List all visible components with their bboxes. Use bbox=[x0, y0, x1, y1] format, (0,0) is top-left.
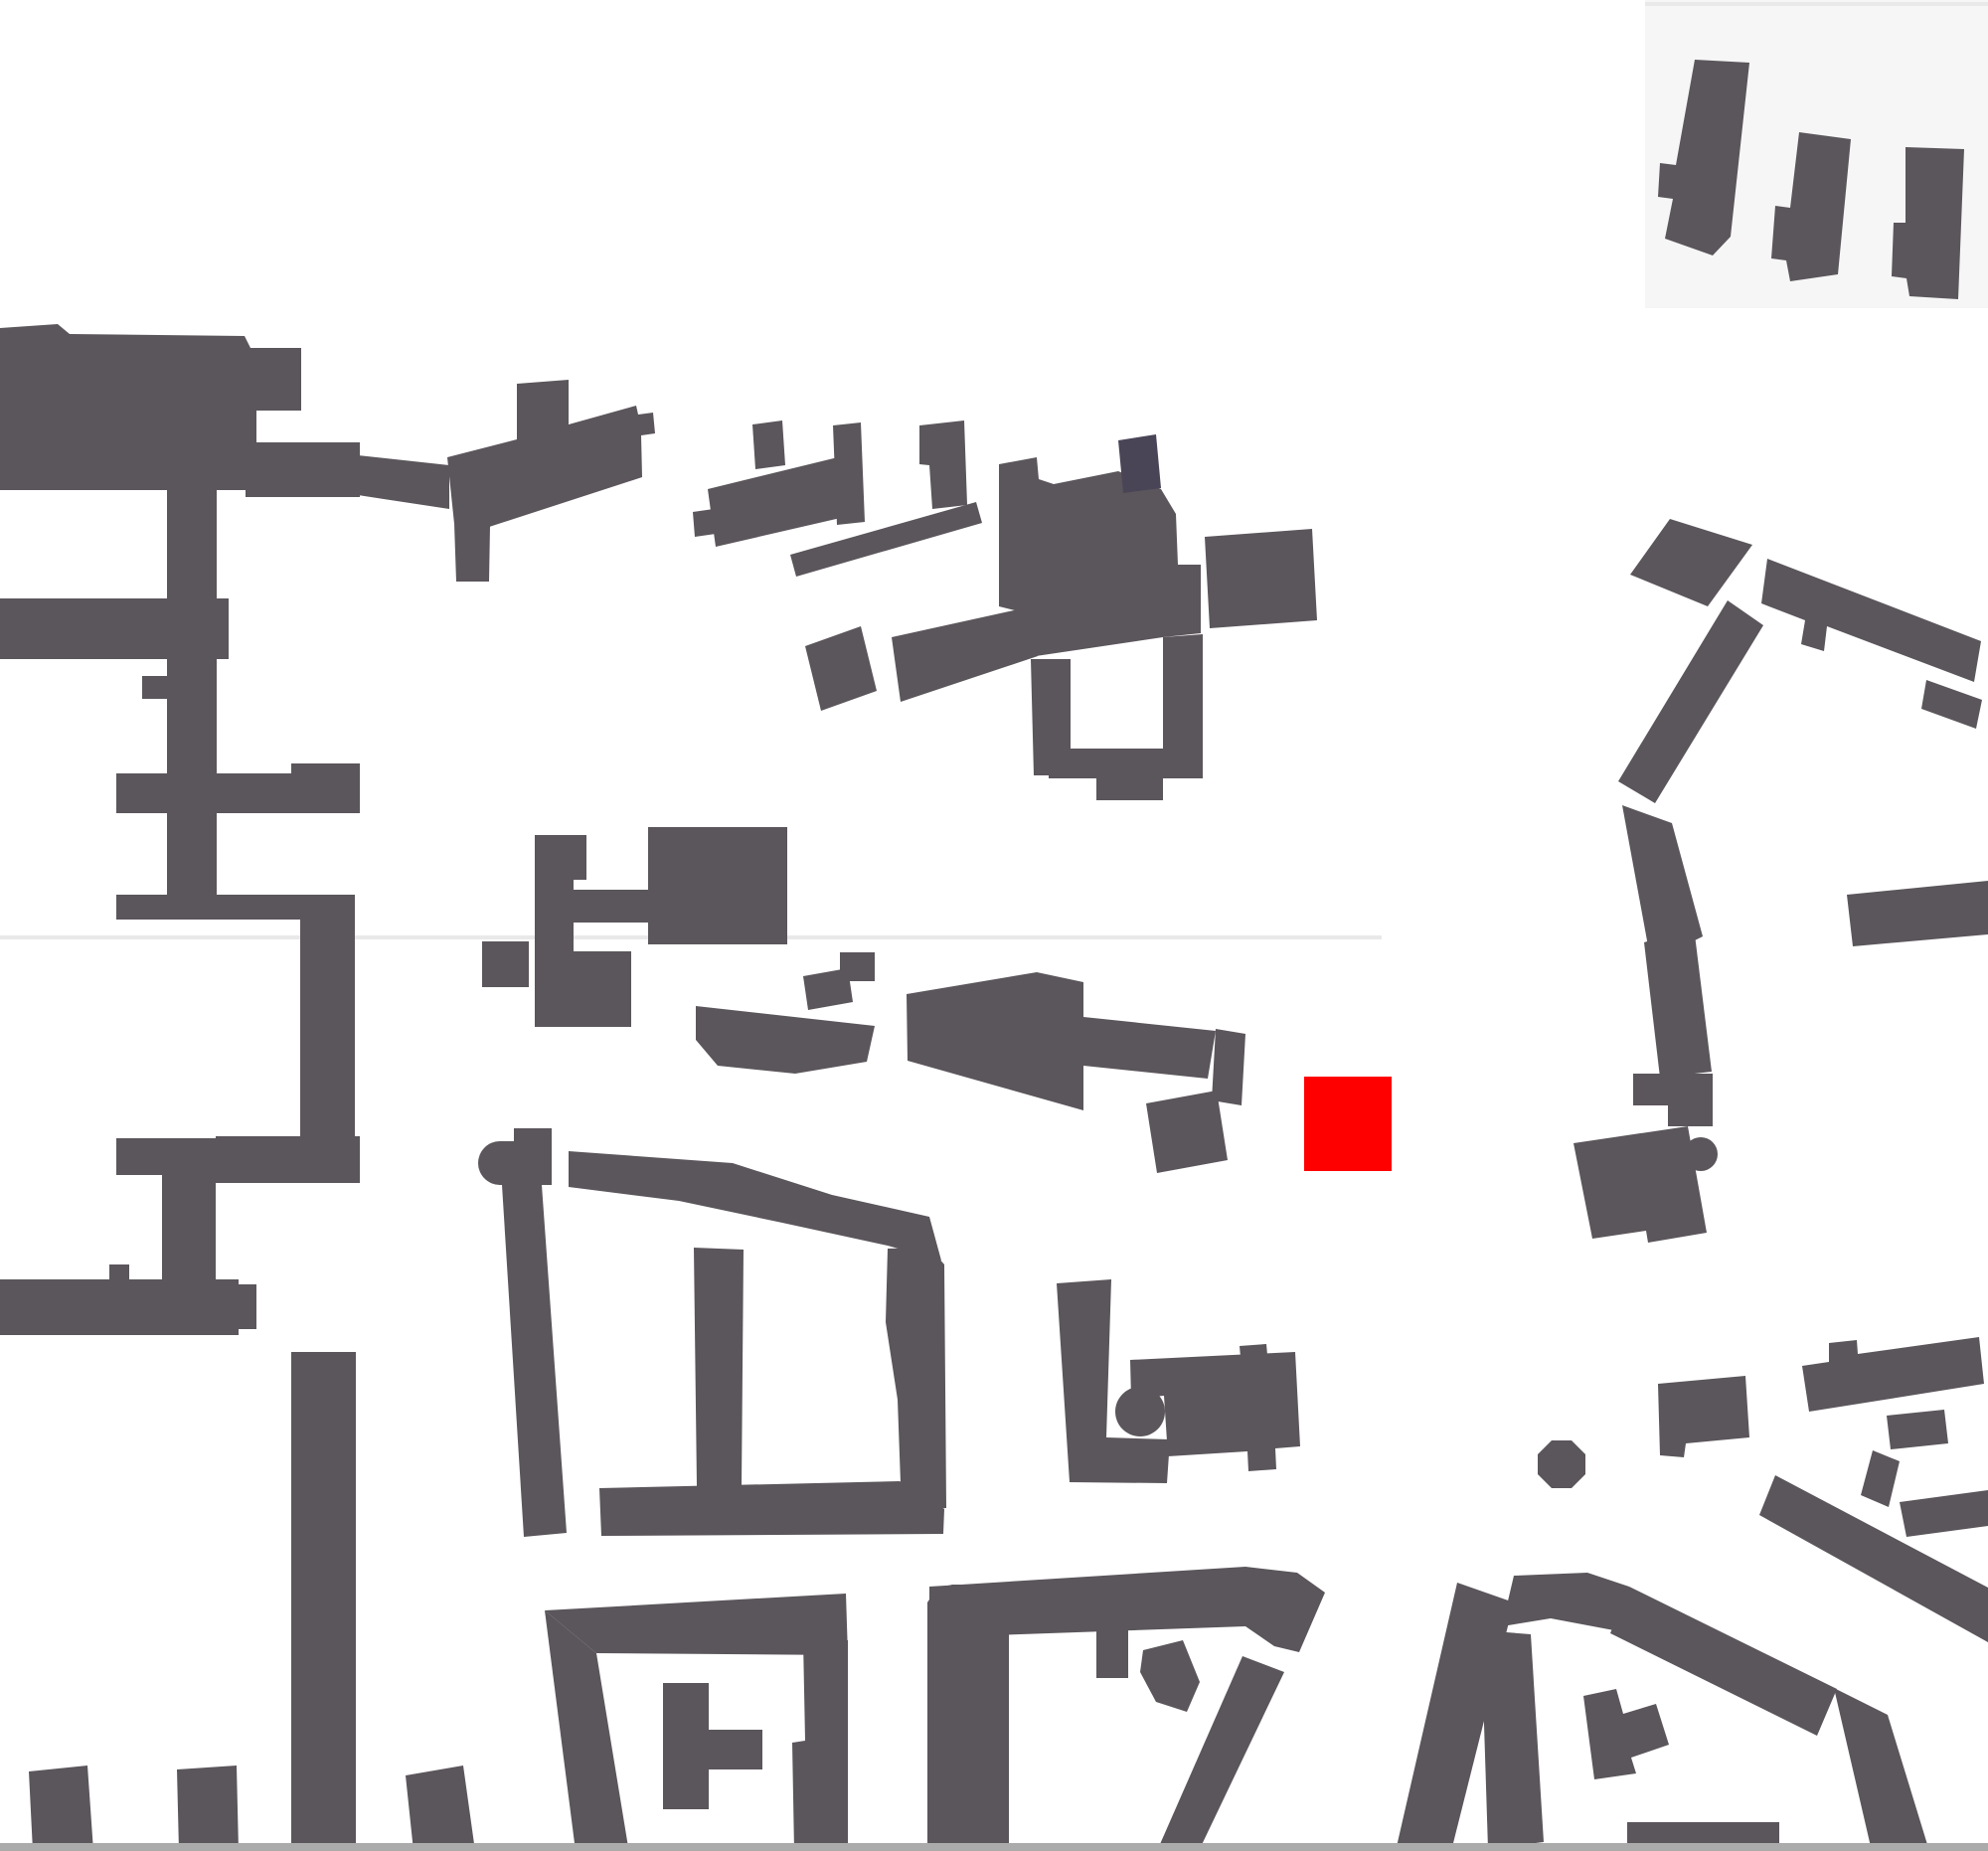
map-container bbox=[0, 0, 1988, 1851]
central-navy-block bbox=[1118, 434, 1161, 493]
map-canvas[interactable] bbox=[0, 0, 1988, 1851]
central-leg-east bbox=[1163, 634, 1203, 749]
left-midbar bbox=[0, 598, 229, 659]
tall-tower bbox=[291, 1352, 356, 1851]
boat-east-square bbox=[840, 952, 875, 981]
left-ring-right bbox=[300, 920, 355, 1136]
south-small-building-3 bbox=[406, 1766, 475, 1851]
midleft-top-square bbox=[535, 835, 586, 880]
courtyard3-west-wall bbox=[927, 1585, 1009, 1851]
left-bottom-bar bbox=[0, 1279, 256, 1335]
train-building-knob bbox=[1115, 1387, 1165, 1436]
midleft-column bbox=[535, 880, 574, 951]
roundabout-octagon bbox=[1538, 1440, 1585, 1488]
district-boundary-northeast bbox=[1645, 2, 1988, 6]
midleft-big-rect bbox=[648, 827, 787, 944]
midleft-lower-block bbox=[535, 951, 631, 1027]
central-east-rect bbox=[1205, 529, 1317, 628]
left-complex-arm-east bbox=[246, 442, 360, 497]
midleft-connector bbox=[574, 890, 648, 923]
southeast-small-rect2 bbox=[1887, 1410, 1948, 1449]
courtyard1-middle-wall bbox=[694, 1248, 744, 1488]
courtyard1-tower-knob bbox=[478, 1141, 522, 1185]
location-marker[interactable] bbox=[1304, 1077, 1392, 1171]
left-bump bbox=[109, 1264, 129, 1279]
left-trunk-upper bbox=[167, 487, 217, 900]
train-stub-top bbox=[1240, 1344, 1268, 1368]
central-bottom-block bbox=[1096, 778, 1163, 800]
central-bottom-bar bbox=[1049, 749, 1203, 778]
cluster-nub-west bbox=[693, 509, 716, 537]
knob-building-knob bbox=[1684, 1137, 1718, 1171]
rifle-building-leg bbox=[454, 524, 490, 582]
courtyard1-south-wall bbox=[599, 1481, 944, 1536]
courtyard3-stub bbox=[1096, 1630, 1128, 1678]
south-small-building-2 bbox=[177, 1766, 239, 1851]
long-building-square bbox=[1146, 1091, 1228, 1173]
north-stub-building bbox=[752, 421, 785, 469]
left-notch-building bbox=[142, 676, 169, 699]
left-trunk-lower bbox=[162, 1173, 216, 1280]
midleft-west-square bbox=[482, 941, 529, 987]
knob-building bbox=[1574, 1126, 1707, 1243]
map-edge-south bbox=[0, 1843, 1988, 1851]
cluster-tower-east bbox=[833, 422, 865, 525]
south-small-building-1 bbox=[29, 1766, 93, 1851]
